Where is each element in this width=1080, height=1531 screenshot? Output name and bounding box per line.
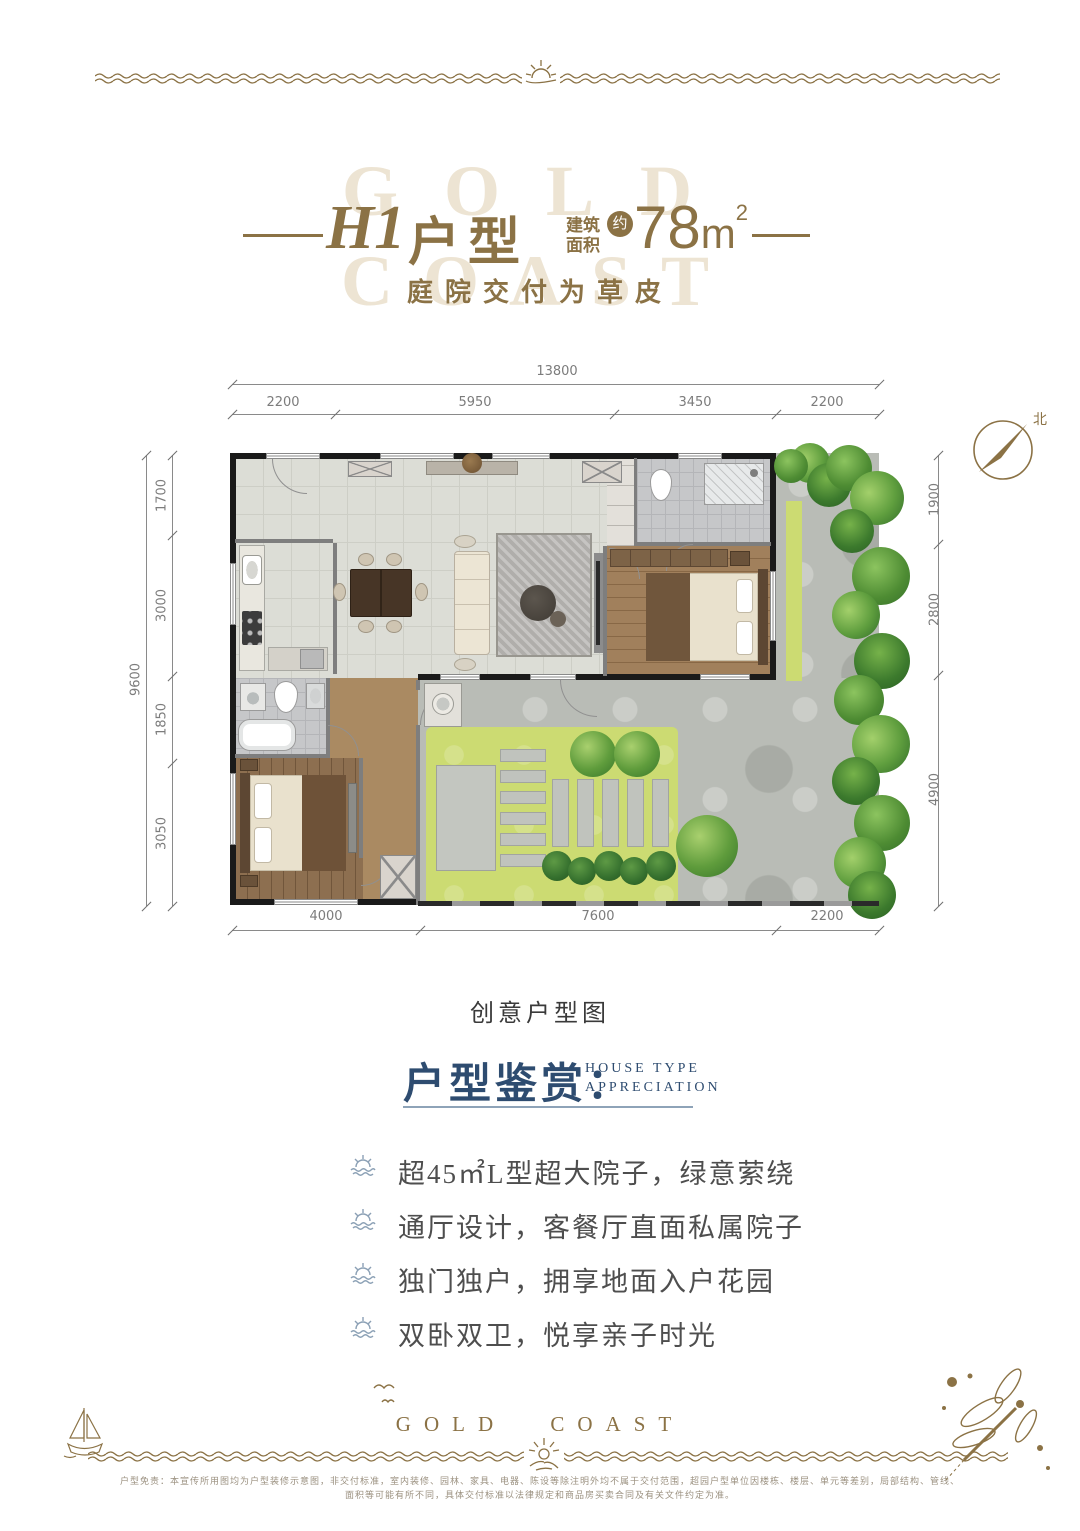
dining-table bbox=[350, 569, 412, 617]
entry-cabinet bbox=[348, 461, 392, 477]
title-dash-left bbox=[243, 234, 323, 237]
sofa bbox=[454, 551, 490, 655]
pillow bbox=[736, 579, 753, 613]
pillow bbox=[254, 827, 272, 863]
coffee-table-small bbox=[550, 611, 566, 627]
tree bbox=[570, 731, 616, 777]
bullet-item: 双卧双卫，悦享亲子时光 bbox=[350, 1314, 830, 1348]
dining-chair bbox=[358, 620, 374, 633]
wall bbox=[416, 680, 420, 690]
dining-chair bbox=[333, 583, 346, 601]
sun-plant-icon bbox=[524, 1436, 564, 1472]
bush bbox=[620, 857, 648, 885]
wall bbox=[637, 542, 771, 546]
paver-pad-large bbox=[436, 765, 496, 871]
sun-icon bbox=[522, 58, 560, 86]
kitchen-sink bbox=[242, 555, 262, 585]
fridge bbox=[300, 649, 324, 669]
tree bbox=[614, 731, 660, 777]
plant-decor bbox=[462, 453, 482, 473]
wall bbox=[359, 758, 363, 858]
outdoor-sink bbox=[432, 693, 454, 715]
bullet-item: 超45㎡L型超大院子，绿意萦绕 bbox=[350, 1152, 830, 1186]
courtyard-fence bbox=[418, 901, 879, 906]
window bbox=[230, 563, 236, 625]
window bbox=[770, 571, 776, 641]
storage-cabinet bbox=[582, 461, 622, 483]
dresser bbox=[348, 783, 357, 853]
dining-chair bbox=[358, 553, 374, 566]
area-value: 78m2 bbox=[634, 193, 748, 262]
bed-1-blanket bbox=[302, 775, 346, 871]
bush bbox=[568, 857, 596, 885]
disclaimer-line-2: 面积等可能有所不同，具体交付标准以法律规定和商品房买卖合同及有关文件约定为准。 bbox=[0, 1488, 1080, 1501]
dining-chair bbox=[415, 583, 428, 601]
bathtub bbox=[238, 719, 296, 751]
wall bbox=[634, 458, 637, 546]
title-house-type: 户型 bbox=[408, 200, 528, 275]
dining-chair bbox=[386, 620, 402, 633]
hall-cabinet bbox=[380, 855, 416, 899]
dining-chair bbox=[386, 553, 402, 566]
lawn-strip bbox=[786, 501, 802, 681]
compass-icon: 北 bbox=[965, 408, 1065, 490]
nightstand bbox=[730, 551, 750, 566]
compass-north-label: 北 bbox=[1033, 412, 1047, 428]
sink bbox=[306, 683, 325, 709]
wall bbox=[235, 539, 333, 543]
bed-1-headboard bbox=[240, 773, 250, 873]
pillow bbox=[736, 621, 753, 655]
window bbox=[492, 453, 550, 459]
window bbox=[274, 899, 358, 905]
shower-head bbox=[750, 469, 758, 477]
disclaimer-line-1: 户型免责：本宣传所用图均为户型装修示意图，非交付标准，室内装修、园林、家具、电器… bbox=[0, 1474, 1080, 1487]
brand-gold-coast: GOLD COAST bbox=[0, 1412, 1080, 1437]
wall bbox=[770, 453, 776, 680]
wall bbox=[416, 725, 420, 905]
pillow bbox=[254, 783, 272, 819]
sun-wave-icon bbox=[350, 1208, 376, 1232]
stove bbox=[242, 611, 262, 645]
patio-door bbox=[700, 674, 750, 680]
window bbox=[380, 453, 454, 459]
nightstand bbox=[240, 875, 258, 887]
bed-2-blanket bbox=[646, 573, 690, 661]
bullet-item: 通厅设计，客餐厅直面私属院子 bbox=[350, 1206, 830, 1240]
title-dash-right bbox=[752, 234, 810, 237]
wall bbox=[235, 754, 330, 758]
wardrobe bbox=[610, 549, 728, 567]
title-house-code: H1 bbox=[326, 193, 405, 264]
washing-machine bbox=[240, 683, 266, 711]
appreciation-title-en: HOUSE TYPEAPPRECIATION bbox=[585, 1059, 721, 1097]
plan-caption: 创意户型图 bbox=[0, 993, 1080, 1028]
wall bbox=[333, 543, 337, 674]
approx-badge: 约 bbox=[607, 211, 633, 237]
side-table bbox=[454, 535, 476, 548]
sun-wave-icon bbox=[350, 1154, 376, 1178]
tv bbox=[596, 561, 600, 645]
subtitle-courtyard-note: 庭院交付为草皮 bbox=[0, 272, 1080, 309]
wall bbox=[603, 546, 607, 676]
window bbox=[230, 773, 236, 845]
bush bbox=[646, 851, 676, 881]
birds-icon bbox=[366, 1382, 406, 1412]
area-label: 建筑面积 bbox=[566, 216, 600, 256]
appreciation-rule bbox=[403, 1106, 693, 1108]
sun-wave-icon bbox=[350, 1316, 376, 1340]
floor-plan bbox=[230, 443, 920, 915]
patio-door bbox=[440, 674, 480, 680]
nightstand bbox=[240, 759, 258, 771]
poster-page: GOLD COAST H1 户型 建筑面积 约 78m2 庭院交付为草皮 138… bbox=[0, 0, 1080, 1531]
watermark-gold: GOLD bbox=[0, 150, 1080, 233]
bush bbox=[594, 851, 624, 881]
bullet-item: 独门独户，拥享地面入户花园 bbox=[350, 1260, 830, 1294]
window bbox=[678, 453, 722, 459]
side-table bbox=[454, 658, 476, 671]
sun-wave-icon bbox=[350, 1262, 376, 1286]
bed-2-headboard bbox=[758, 569, 768, 665]
large-tree bbox=[676, 815, 738, 877]
bush bbox=[542, 851, 572, 881]
